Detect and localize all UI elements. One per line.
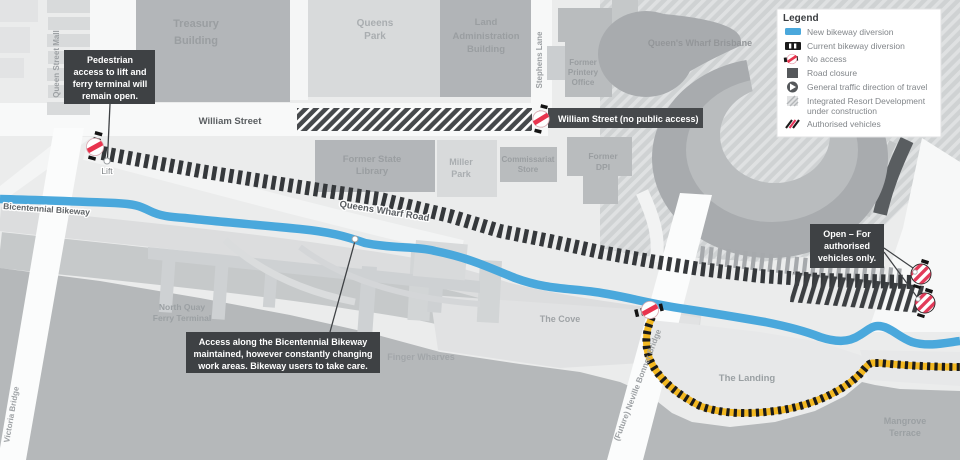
svg-text:work areas. Bikeway users to t: work areas. Bikeway users to take care.	[197, 361, 368, 371]
svg-text:under construction: under construction	[807, 106, 877, 116]
svg-text:Former: Former	[588, 151, 618, 161]
svg-text:Former: Former	[569, 58, 597, 67]
svg-text:William Street (no public acce: William Street (no public access)	[558, 114, 698, 124]
svg-text:authorised: authorised	[824, 241, 870, 251]
svg-text:Open – For: Open – For	[823, 229, 871, 239]
svg-text:Access along the Bicentennial: Access along the Bicentennial Bikeway	[199, 337, 368, 347]
svg-text:ferry terminal will: ferry terminal will	[73, 79, 148, 89]
svg-text:maintained, however constantly: maintained, however constantly changing	[193, 349, 372, 359]
svg-text:Library: Library	[356, 166, 389, 177]
svg-text:Commissariat: Commissariat	[502, 155, 555, 164]
svg-text:New bikeway diversion: New bikeway diversion	[807, 27, 894, 37]
svg-text:No access: No access	[807, 54, 847, 64]
svg-text:Former State: Former State	[343, 154, 402, 165]
svg-text:Park: Park	[451, 169, 472, 179]
svg-text:Ferry Terminal: Ferry Terminal	[153, 313, 211, 323]
svg-text:Miller: Miller	[449, 157, 473, 167]
svg-text:The Landing: The Landing	[719, 373, 776, 384]
svg-text:William Street: William Street	[199, 116, 263, 127]
svg-text:access to lift and: access to lift and	[73, 67, 146, 77]
svg-text:Authorised vehicles: Authorised vehicles	[807, 119, 881, 129]
svg-text:Administration: Administration	[452, 31, 519, 42]
svg-text:Queen's Wharf Brisbane: Queen's Wharf Brisbane	[648, 38, 752, 48]
svg-text:Lift: Lift	[101, 166, 113, 176]
svg-text:Land: Land	[475, 17, 498, 28]
svg-text:vehicles only.: vehicles only.	[818, 253, 876, 263]
svg-text:Current bikeway diversion: Current bikeway diversion	[807, 41, 905, 51]
svg-text:Building: Building	[467, 44, 505, 55]
svg-text:Building: Building	[174, 35, 218, 47]
svg-text:remain open.: remain open.	[82, 91, 138, 101]
svg-text:General traffic direction of t: General traffic direction of travel	[807, 82, 927, 92]
svg-text:Park: Park	[364, 31, 386, 42]
svg-text:Printery: Printery	[568, 68, 599, 77]
svg-text:Mangrove: Mangrove	[884, 416, 927, 426]
svg-text:Stephens Lane: Stephens Lane	[535, 31, 544, 88]
svg-text:Terrace: Terrace	[889, 428, 921, 438]
svg-text:Finger Wharves: Finger Wharves	[387, 352, 455, 362]
svg-text:Queens: Queens	[357, 18, 394, 29]
svg-text:Office: Office	[572, 78, 595, 87]
svg-text:North Quay: North Quay	[159, 302, 206, 312]
svg-text:Road closure: Road closure	[807, 68, 857, 78]
svg-text:Pedestrian: Pedestrian	[87, 55, 133, 65]
svg-text:Store: Store	[518, 165, 539, 174]
svg-text:Legend: Legend	[783, 13, 819, 24]
svg-text:Queen Street Mall: Queen Street Mall	[52, 30, 61, 98]
svg-text:Treasury: Treasury	[173, 18, 220, 30]
svg-text:DPI: DPI	[596, 162, 610, 172]
svg-text:The Cove: The Cove	[540, 314, 581, 324]
svg-text:Integrated Resort Development: Integrated Resort Development	[807, 96, 926, 106]
